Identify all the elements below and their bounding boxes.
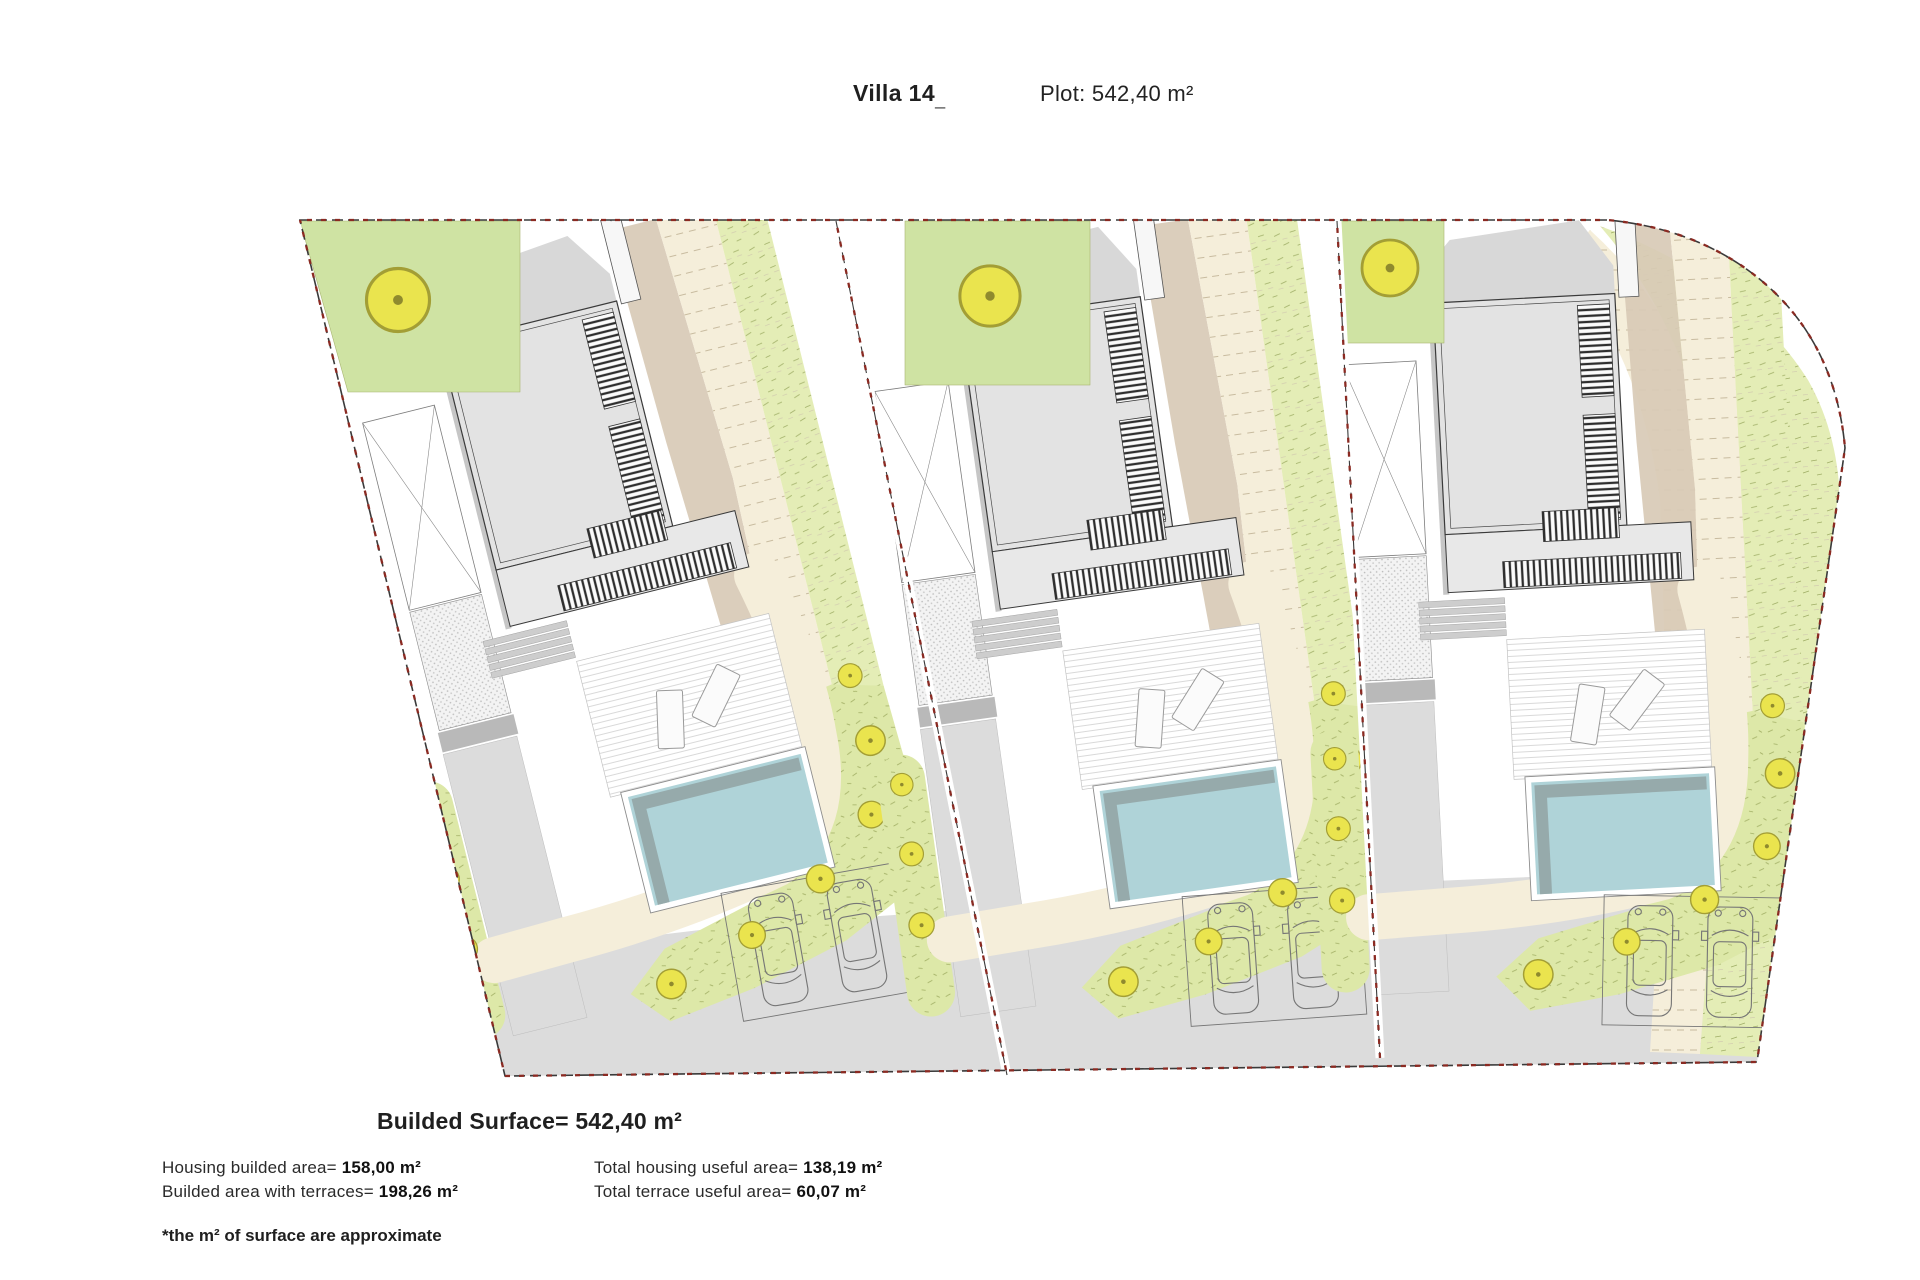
site-plan-drawing — [0, 0, 1920, 1280]
front-garden-square — [300, 221, 520, 392]
stat-housing-builded-area: Housing builded area= 158,00 m² — [162, 1158, 421, 1178]
plot-area-label: Plot: 542,40 m² — [1040, 81, 1194, 107]
stat-total-housing-useful: Total housing useful area= 138,19 m² — [594, 1158, 882, 1178]
site-plan-page: Villa 14_ Plot: 542,40 m² Builded Surfac… — [0, 0, 1920, 1280]
stat-total-terrace-useful: Total terrace useful area= 60,07 m² — [594, 1182, 866, 1202]
stat-builded-area-terraces: Builded area with terraces= 198,26 m² — [162, 1182, 458, 1202]
builded-surface-line: Builded Surface= 542,40 m² — [377, 1108, 682, 1135]
footnote: *the m² of surface are approximate — [162, 1226, 442, 1246]
front-garden-square — [1340, 221, 1444, 343]
cursor-mark: _ — [935, 89, 945, 109]
page-title: Villa 14_ — [853, 80, 945, 110]
front-garden-square — [905, 221, 1090, 385]
